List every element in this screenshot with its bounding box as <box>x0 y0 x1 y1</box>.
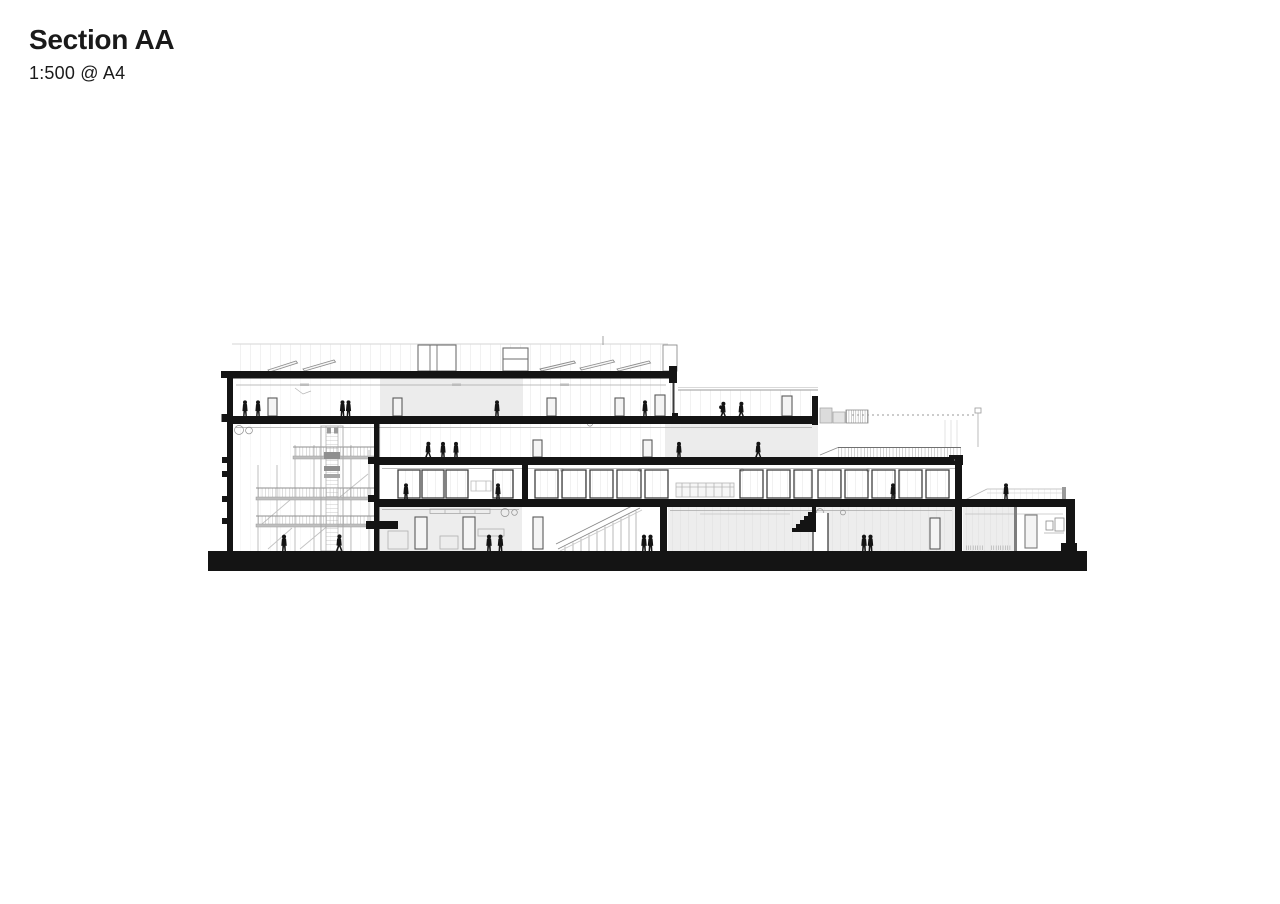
level2-room-fill <box>665 423 818 457</box>
small-table <box>471 481 491 491</box>
roof-slab <box>227 371 677 379</box>
section-drawing <box>0 0 1280 904</box>
right-end-wall <box>1066 501 1075 545</box>
person-silhouette <box>648 535 653 551</box>
hall-wall <box>660 507 667 551</box>
level1-floor-slab <box>375 499 1075 507</box>
ground-slab <box>208 551 1087 571</box>
level3-slab-end-parapet <box>812 396 818 425</box>
partition-wall <box>1014 507 1017 551</box>
roof-plant-box <box>503 348 528 371</box>
level1-glazing <box>398 470 949 498</box>
left-wall <box>227 371 233 552</box>
mid-wall <box>522 458 528 507</box>
roof-slab-endcap <box>669 366 677 383</box>
landing-stub <box>366 521 398 529</box>
right-wall-upper-block <box>955 457 962 552</box>
right-wall-footing <box>1061 543 1077 552</box>
right-terrace-parapet <box>820 448 961 458</box>
drawing-stage <box>0 0 1280 904</box>
low-roof-parapet <box>963 487 1066 501</box>
level2-floor-slab <box>375 457 963 465</box>
level3-floor-slab <box>227 416 818 424</box>
atrium-wall <box>374 420 380 551</box>
person-silhouette <box>641 535 646 551</box>
terrace-upstand <box>672 413 678 417</box>
reception-counter <box>676 483 734 497</box>
